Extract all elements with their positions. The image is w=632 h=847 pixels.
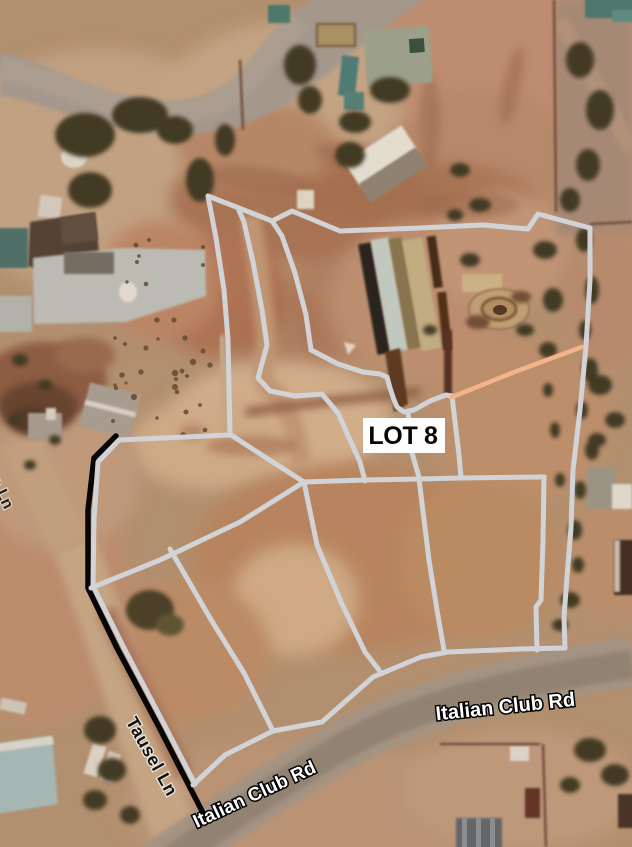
svg-text:LOT 8: LOT 8 xyxy=(368,422,438,450)
